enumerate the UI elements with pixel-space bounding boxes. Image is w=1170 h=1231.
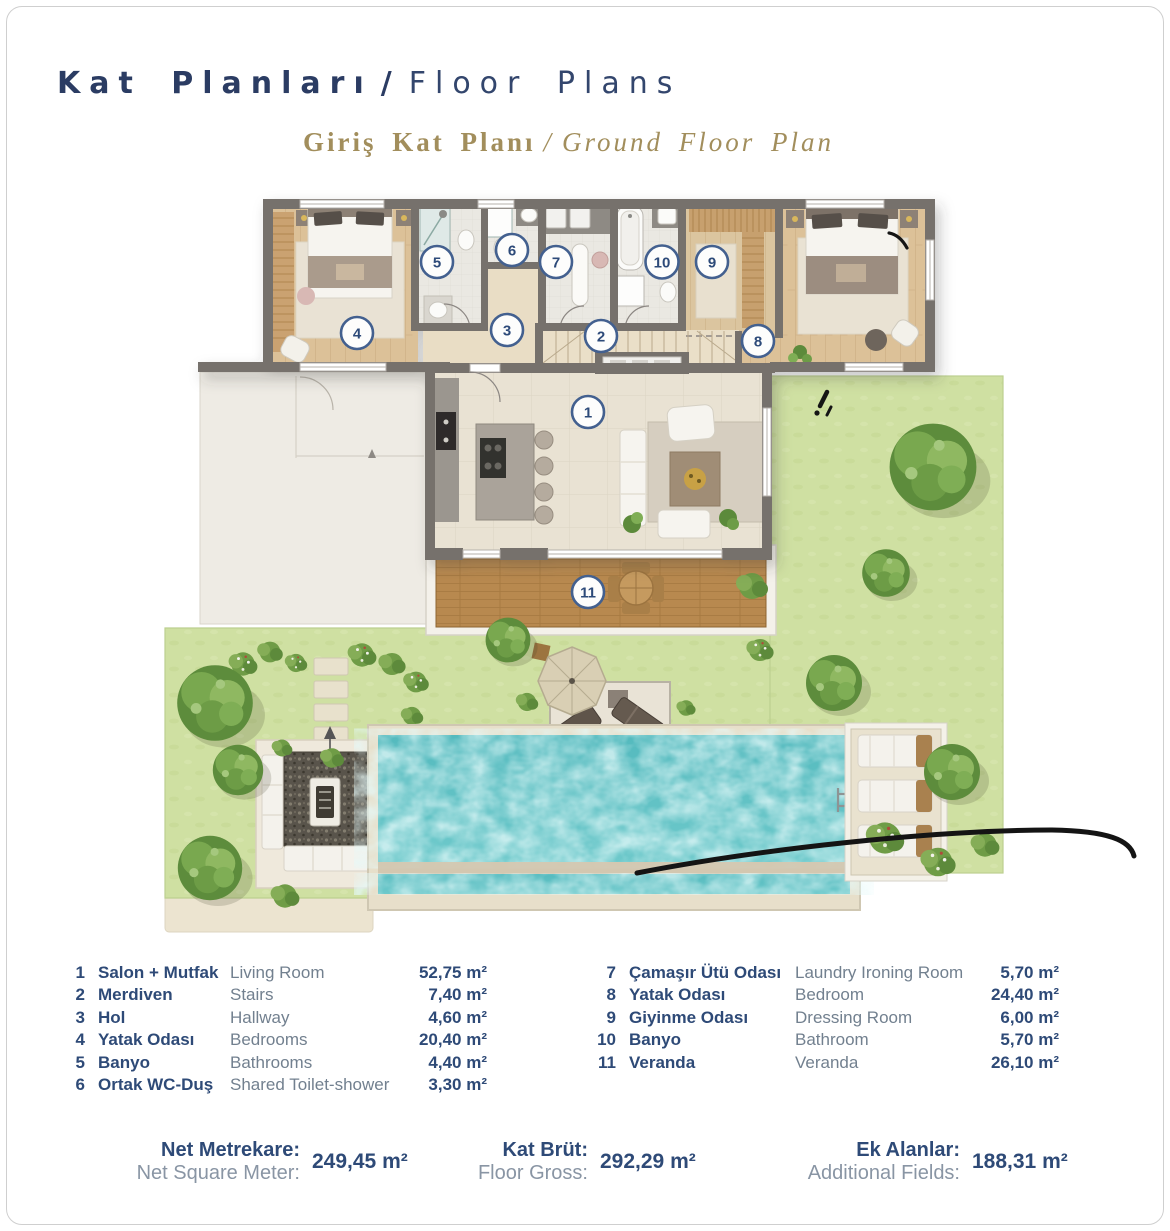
legend-name-en: Stairs bbox=[230, 984, 395, 1006]
svg-text:4: 4 bbox=[353, 326, 362, 343]
room-badge-1: 1 bbox=[572, 396, 604, 428]
stat-value: 292,29 m² bbox=[600, 1150, 696, 1174]
legend-area: 7,40 m² bbox=[395, 984, 487, 1006]
legend-number: 9 bbox=[594, 1007, 616, 1029]
legend-row: 6Ortak WC-DuşShared Toilet-shower3,30 m² bbox=[63, 1074, 487, 1096]
legend-name-en: Veranda bbox=[795, 1052, 967, 1074]
legend-row: 3HolHallway4,60 m² bbox=[63, 1007, 487, 1029]
room-badge-2: 2 bbox=[585, 320, 617, 352]
svg-text:11: 11 bbox=[580, 585, 596, 602]
legend-area: 26,10 m² bbox=[967, 1052, 1059, 1074]
swimming-pool bbox=[368, 725, 860, 910]
patio-umbrella bbox=[538, 647, 606, 715]
legend-name-tr: Çamaşır Ütü Odası bbox=[629, 962, 795, 984]
stat-label-tr: Net Metrekare: bbox=[98, 1139, 300, 1162]
legend-name-en: Bedrooms bbox=[230, 1029, 395, 1051]
legend-row: 1Salon + MutfakLiving Room52,75 m² bbox=[63, 962, 487, 984]
stat-label-en: Floor Gross: bbox=[448, 1162, 588, 1185]
legend-row: 4Yatak OdasıBedrooms20,40 m² bbox=[63, 1029, 487, 1051]
legend-number: 10 bbox=[594, 1029, 616, 1051]
stat-label-en: Additional Fields: bbox=[748, 1162, 960, 1185]
legend-number: 7 bbox=[594, 962, 616, 984]
legend-name-tr: Hol bbox=[98, 1007, 230, 1029]
pergola-lounge bbox=[256, 726, 378, 888]
round-table bbox=[865, 329, 887, 351]
legend-number: 3 bbox=[63, 1007, 85, 1029]
legend-name-en: Laundry Ironing Room bbox=[795, 962, 967, 984]
legend-area: 24,40 m² bbox=[967, 984, 1059, 1006]
legend-number: 2 bbox=[63, 984, 85, 1006]
legend-name-en: Living Room bbox=[230, 962, 395, 984]
legend-name-en: Bathrooms bbox=[230, 1052, 395, 1074]
svg-text:6: 6 bbox=[508, 243, 516, 260]
legend-row: 8Yatak OdasıBedroom24,40 m² bbox=[594, 984, 1059, 1006]
legend-number: 11 bbox=[594, 1052, 616, 1074]
legend-number: 4 bbox=[63, 1029, 85, 1051]
legend-area: 6,00 m² bbox=[967, 1007, 1059, 1029]
legend-name-tr: Salon + Mutfak bbox=[98, 962, 230, 984]
svg-text:8: 8 bbox=[754, 334, 762, 351]
fire-table bbox=[310, 778, 340, 826]
stat-gross-area: Kat Brüt:Floor Gross: 292,29 m² bbox=[448, 1139, 696, 1185]
room-badge-7: 7 bbox=[540, 246, 572, 278]
room-badge-9: 9 bbox=[696, 246, 728, 278]
legend-area: 3,30 m² bbox=[395, 1074, 487, 1096]
legend-row: 11VerandaVeranda26,10 m² bbox=[594, 1052, 1059, 1074]
svg-text:1: 1 bbox=[584, 405, 592, 422]
side-patio bbox=[200, 372, 430, 624]
floor-plan-page: Kat Planları/Floor Plans Giriş Kat Planı… bbox=[0, 0, 1170, 1231]
legend-area: 5,70 m² bbox=[967, 962, 1059, 984]
pouf bbox=[297, 287, 315, 305]
svg-text:3: 3 bbox=[503, 323, 511, 340]
legend-name-tr: Yatak Odası bbox=[629, 984, 795, 1006]
legend-name-tr: Veranda bbox=[629, 1052, 795, 1074]
room-badge-10: 10 bbox=[646, 246, 679, 279]
room-badge-5: 5 bbox=[421, 246, 453, 278]
legend-name-tr: Giyinme Odası bbox=[629, 1007, 795, 1029]
stat-value: 188,31 m² bbox=[972, 1150, 1068, 1174]
legend-right-column: 7Çamaşır Ütü OdasıLaundry Ironing Room5,… bbox=[594, 962, 1059, 1074]
svg-text:10: 10 bbox=[654, 255, 671, 272]
legend-left-column: 1Salon + MutfakLiving Room52,75 m² 2Merd… bbox=[63, 962, 487, 1096]
legend-number: 1 bbox=[63, 962, 85, 984]
room-badge-3: 3 bbox=[491, 314, 523, 346]
legend-row: 9Giyinme OdasıDressing Room6,00 m² bbox=[594, 1007, 1059, 1029]
pool-ledge bbox=[378, 862, 850, 874]
laundry-basket bbox=[592, 252, 608, 268]
legend-name-en: Dressing Room bbox=[795, 1007, 967, 1029]
stat-additional-area: Ek Alanlar:Additional Fields: 188,31 m² bbox=[748, 1139, 1068, 1185]
legend-area: 20,40 m² bbox=[395, 1029, 487, 1051]
legend-row: 7Çamaşır Ütü OdasıLaundry Ironing Room5,… bbox=[594, 962, 1059, 984]
legend-area: 4,60 m² bbox=[395, 1007, 487, 1029]
legend-name-en: Bathroom bbox=[795, 1029, 967, 1051]
svg-text:5: 5 bbox=[433, 255, 441, 272]
svg-text:9: 9 bbox=[708, 255, 716, 272]
stat-net-area: Net Metrekare:Net Square Meter: 249,45 m… bbox=[98, 1139, 408, 1185]
room-badge-4: 4 bbox=[341, 317, 373, 349]
room-badge-8: 8 bbox=[742, 325, 774, 357]
legend-area: 52,75 m² bbox=[395, 962, 487, 984]
legend-number: 8 bbox=[594, 984, 616, 1006]
legend-number: 5 bbox=[63, 1052, 85, 1074]
legend-area: 4,40 m² bbox=[395, 1052, 487, 1074]
legend-name-tr: Yatak Odası bbox=[98, 1029, 230, 1051]
stat-label-tr: Kat Brüt: bbox=[448, 1139, 588, 1162]
legend-row: 5BanyoBathrooms4,40 m² bbox=[63, 1052, 487, 1074]
room-badge-6: 6 bbox=[496, 234, 528, 266]
room-badge-11: 11 bbox=[572, 576, 604, 608]
legend-name-en: Shared Toilet-shower bbox=[230, 1074, 395, 1096]
svg-text:2: 2 bbox=[597, 329, 605, 346]
stat-label-tr: Ek Alanlar: bbox=[748, 1139, 960, 1162]
ironing-board bbox=[572, 244, 588, 306]
legend-name-tr: Merdiven bbox=[98, 984, 230, 1006]
svg-text:7: 7 bbox=[552, 255, 560, 272]
legend-number: 6 bbox=[63, 1074, 85, 1096]
stat-value: 249,45 m² bbox=[312, 1150, 408, 1174]
legend-row: 2MerdivenStairs7,40 m² bbox=[63, 984, 487, 1006]
legend-row: 10BanyoBathroom5,70 m² bbox=[594, 1029, 1059, 1051]
legend-name-tr: Banyo bbox=[629, 1029, 795, 1051]
legend-name-tr: Banyo bbox=[98, 1052, 230, 1074]
legend-name-en: Bedroom bbox=[795, 984, 967, 1006]
stat-label-en: Net Square Meter: bbox=[98, 1162, 300, 1185]
legend-name-tr: Ortak WC-Duş bbox=[98, 1074, 230, 1096]
legend-name-en: Hallway bbox=[230, 1007, 395, 1029]
legend-area: 5,70 m² bbox=[967, 1029, 1059, 1051]
